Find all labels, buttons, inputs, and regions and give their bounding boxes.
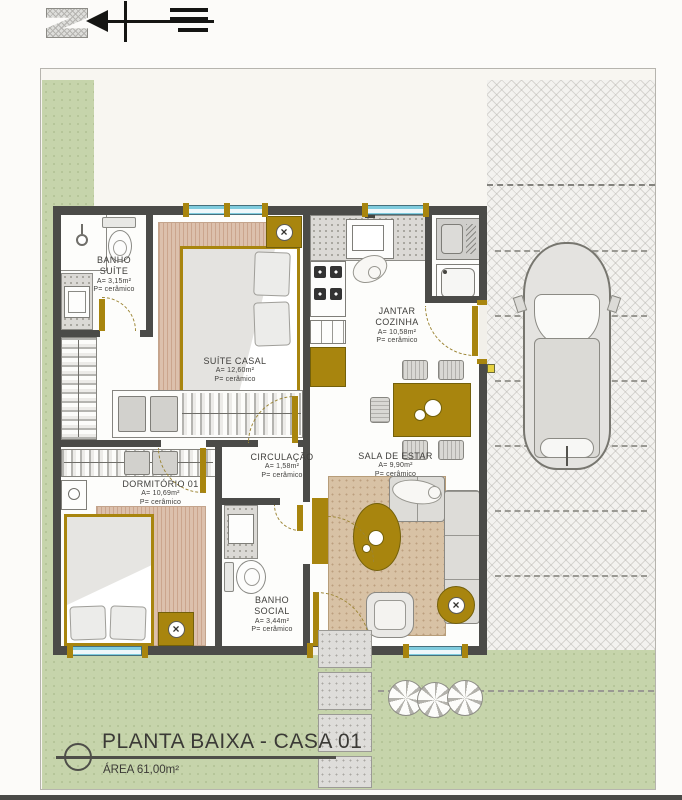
- window-jamb: [183, 203, 189, 217]
- title-block: PLANTA BAIXA - CASA 01 ÁREA 61,00m²: [50, 728, 370, 780]
- window-jamb: [403, 644, 409, 658]
- floor-plan-sheet: × × × ×: [0, 0, 682, 800]
- room-floor: P= cerâmico: [237, 472, 327, 481]
- kitchen-cabinet: [310, 320, 346, 344]
- stepping-stone: [318, 672, 372, 710]
- scale-bar-icon: [170, 8, 208, 12]
- interior-wall: [425, 215, 432, 303]
- window: [366, 205, 425, 215]
- room-floor: P= cerâmico: [241, 626, 303, 635]
- room-label-jantar-cozinha: JANTAR COZINHA A= 10,58m² P= cerâmico: [357, 306, 437, 346]
- person-head: [428, 486, 441, 499]
- room-label-sala-de-estar: SALA DE ESTAR A= 9,90m² P= cerâmico: [343, 451, 448, 480]
- refrigerator: [310, 347, 346, 387]
- property-dashed-line: [487, 184, 655, 186]
- laundry-drainboard: [466, 224, 476, 254]
- interior-wall: [146, 215, 153, 331]
- scale-bar-icon: [178, 28, 208, 32]
- north-symbol-icon: [46, 8, 88, 38]
- desk-lamp-icon: [68, 488, 80, 500]
- room-name: JANTAR COZINHA: [357, 306, 437, 329]
- room-area: A= 1,58m²: [237, 463, 327, 472]
- plan-area-label: ÁREA 61,00m²: [103, 764, 179, 776]
- interior-wall: [222, 498, 280, 505]
- door-opening: [479, 305, 487, 360]
- room-area: A= 3,44m²: [241, 618, 303, 627]
- laundry-sink-basin: [441, 224, 463, 254]
- north-arrow-head-icon: [86, 10, 108, 32]
- scale-bar-icon: [170, 17, 208, 21]
- room-area: A= 9,90m²: [343, 462, 448, 471]
- car-antenna: [566, 446, 568, 466]
- room-label-circulacao: CIRCULAÇÃO A= 1,58m² P= cerâmico: [237, 452, 327, 481]
- tree-icon: [447, 680, 483, 716]
- room-floor: P= cerâmico: [86, 286, 142, 295]
- wardrobe-rod: [78, 340, 79, 437]
- person-head: [368, 266, 381, 279]
- wall-light-icon: [487, 364, 495, 373]
- room-name: DORMITÓRIO 01: [103, 479, 218, 490]
- window-jamb: [142, 644, 148, 658]
- exterior-wall: [53, 206, 61, 655]
- room-name: CIRCULAÇÃO: [237, 452, 327, 463]
- window-jamb: [462, 644, 468, 658]
- table-plate: [414, 409, 426, 421]
- lamp-icon: ×: [276, 224, 293, 241]
- bottom-edge: [0, 795, 682, 800]
- window-jamb: [362, 203, 368, 217]
- door-jamb: [477, 359, 487, 364]
- nightstand: ×: [158, 612, 194, 646]
- interior-wall: [303, 215, 310, 440]
- dining-chair: [438, 360, 464, 380]
- burner-icon: [330, 266, 342, 278]
- room-area: A= 10,69m²: [103, 490, 218, 499]
- vanity-sink: [228, 514, 254, 544]
- exterior-wall: [479, 360, 487, 655]
- window-jamb: [224, 203, 230, 217]
- window-jamb: [423, 203, 429, 217]
- wardrobe-drawer: [118, 396, 146, 432]
- room-area: A= 3,15m²: [86, 278, 142, 287]
- burner-icon: [314, 288, 326, 300]
- room-name: SUÍTE CASAL: [185, 356, 285, 367]
- room-label-banho-social: BANHO SOCIAL A= 3,44m² P= cerâmico: [241, 595, 303, 635]
- room-floor: P= cerâmico: [343, 471, 448, 480]
- room-label-dormitorio-01: DORMITÓRIO 01 A= 10,69m² P= cerâmico: [103, 479, 218, 508]
- room-floor: P= cerâmico: [103, 499, 218, 508]
- table-plate: [424, 399, 442, 417]
- window: [72, 646, 142, 656]
- interior-wall: [140, 330, 153, 337]
- burner-icon: [330, 288, 342, 300]
- window-jamb: [262, 203, 268, 217]
- sliding-door-panel: [312, 498, 328, 564]
- pillow: [109, 605, 146, 640]
- room-floor: P= cerâmico: [185, 376, 285, 385]
- wardrobe-drawer: [124, 451, 150, 475]
- armchair-cushion: [374, 600, 406, 630]
- window-jamb: [67, 644, 73, 658]
- kitchen-sink-basin: [352, 225, 384, 251]
- room-label-suite-casal: SUÍTE CASAL A= 12,60m² P= cerâmico: [185, 356, 285, 385]
- lamp-icon: ×: [168, 621, 185, 638]
- interior-wall: [298, 440, 310, 447]
- dining-chair: [402, 360, 428, 380]
- north-arrow-cross-tick: [124, 1, 127, 42]
- title-underline: [56, 756, 336, 759]
- door-jamb: [477, 300, 487, 305]
- toilet-bowl-inner: [113, 240, 127, 256]
- wardrobe-drawer: [150, 396, 178, 432]
- interior-wall: [432, 296, 479, 303]
- paver-joint-line: [495, 575, 647, 577]
- paver-joint-line: [495, 510, 647, 512]
- washer-knob-icon: [443, 270, 447, 274]
- room-area: A= 10,58m²: [357, 329, 437, 338]
- room-name: BANHO SUÍTE: [86, 255, 142, 278]
- interior-wall: [61, 440, 161, 447]
- dining-chair: [370, 397, 390, 423]
- exterior-wall: [479, 206, 487, 305]
- toilet-bowl-inner: [244, 568, 260, 586]
- toilet-tank: [224, 562, 234, 592]
- vanity-sink-basin: [68, 291, 86, 313]
- wardrobe: [61, 337, 97, 440]
- room-name: BANHO SOCIAL: [241, 595, 303, 618]
- shower-arm: [81, 224, 83, 234]
- pillow: [69, 605, 106, 640]
- interior-wall: [61, 330, 100, 337]
- stepping-stone: [318, 630, 372, 668]
- burner-icon: [314, 266, 326, 278]
- side-table: ×: [437, 586, 475, 624]
- nightstand: ×: [266, 216, 302, 248]
- room-label-banho-suite: BANHO SUÍTE A= 3,15m² P= cerâmico: [86, 255, 142, 295]
- room-floor: P= cerâmico: [357, 337, 437, 346]
- toilet-tank: [102, 217, 136, 228]
- pillow: [253, 301, 291, 346]
- pillow: [253, 251, 291, 296]
- shower-head-icon: [76, 234, 88, 246]
- interior-wall: [303, 564, 310, 655]
- room-name: SALA DE ESTAR: [343, 451, 448, 462]
- room-area: A= 12,60m²: [185, 367, 285, 376]
- plant-icon: ×: [448, 597, 465, 614]
- plan-title: PLANTA BAIXA - CASA 01: [102, 730, 362, 754]
- window: [408, 646, 462, 656]
